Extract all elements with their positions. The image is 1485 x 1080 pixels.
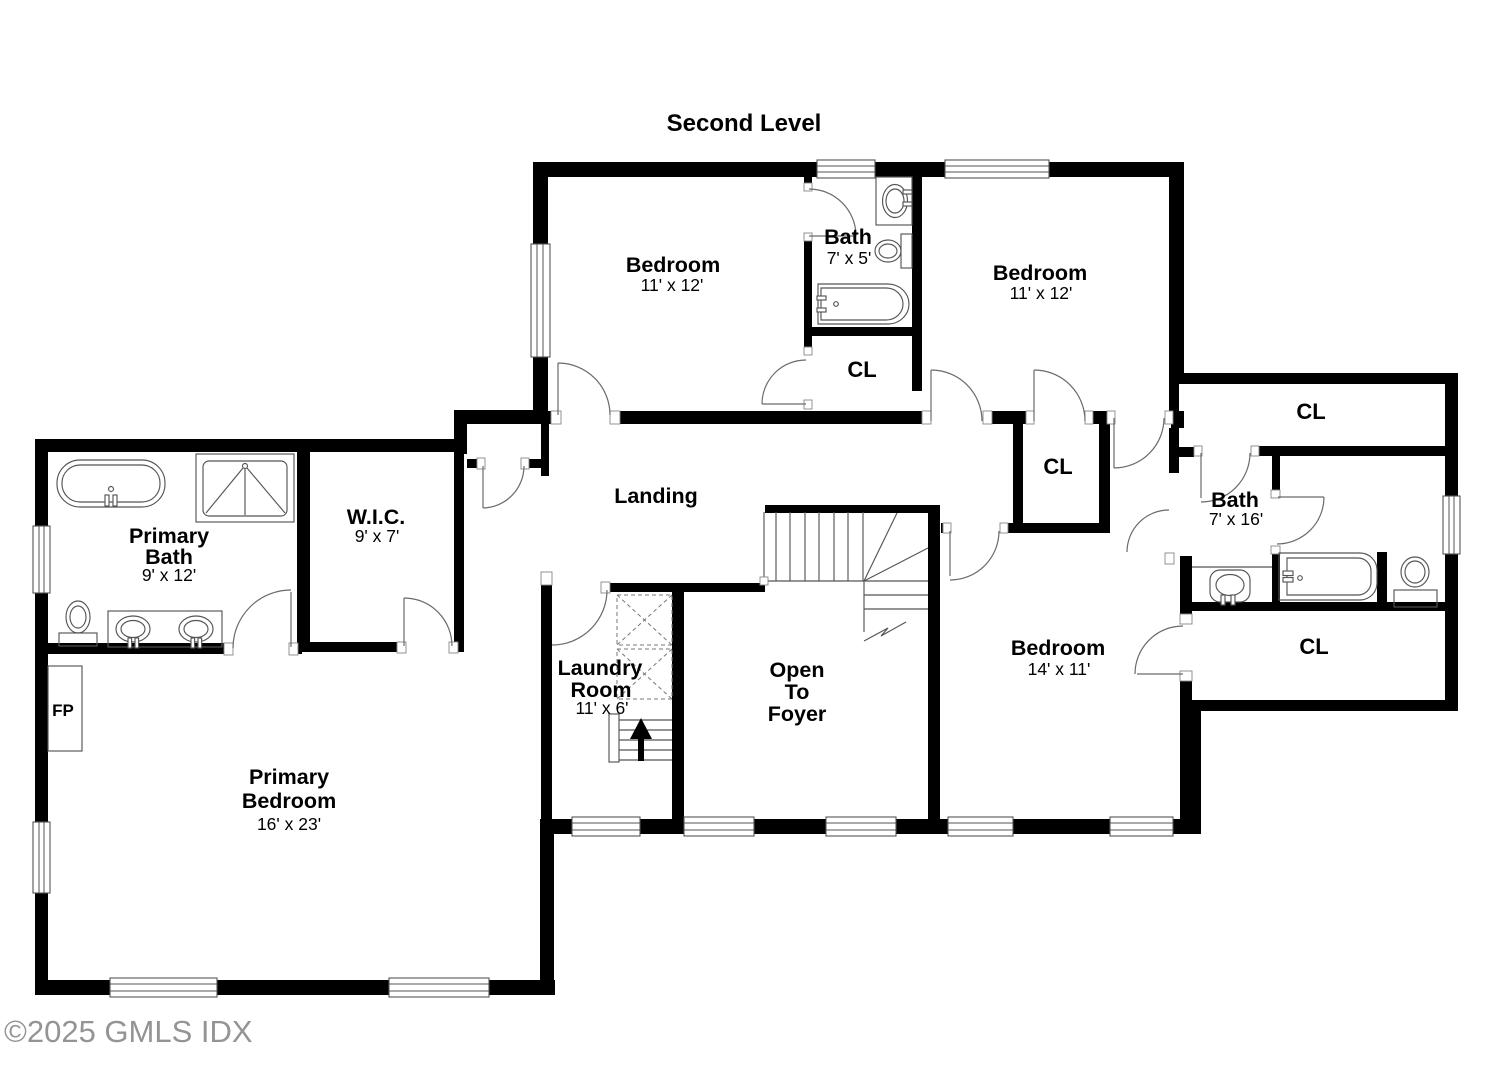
svg-text:Bedroom: Bedroom	[626, 253, 720, 277]
svg-text:16' x 23': 16' x 23'	[257, 814, 321, 834]
svg-text:©2025 GMLS IDX: ©2025 GMLS IDX	[4, 1014, 253, 1049]
svg-text:CL: CL	[847, 357, 876, 382]
svg-text:7' x 5': 7' x 5'	[827, 248, 872, 268]
svg-text:Foyer: Foyer	[768, 702, 827, 726]
svg-text:9' x 12': 9' x 12'	[142, 565, 196, 585]
svg-text:CL: CL	[1299, 634, 1328, 659]
svg-text:Landing: Landing	[614, 484, 698, 508]
svg-text:FP: FP	[52, 701, 74, 720]
svg-text:Bedroom: Bedroom	[993, 261, 1087, 285]
svg-text:Bedroom: Bedroom	[242, 789, 336, 813]
svg-text:Primary: Primary	[249, 765, 329, 789]
svg-text:11' x 12': 11' x 12'	[641, 275, 704, 295]
svg-text:CL: CL	[1043, 454, 1072, 479]
svg-text:CL: CL	[1296, 399, 1325, 424]
svg-text:7' x 16': 7' x 16'	[1209, 509, 1263, 529]
svg-text:To: To	[785, 680, 810, 704]
svg-text:9' x 7': 9' x 7'	[355, 526, 400, 546]
svg-text:11' x 6': 11' x 6'	[575, 698, 628, 718]
svg-text:Laundry: Laundry	[558, 656, 643, 680]
svg-text:11' x 12': 11' x 12'	[1010, 283, 1073, 303]
svg-text:Second Level: Second Level	[667, 110, 822, 137]
svg-text:14' x 11': 14' x 11'	[1028, 659, 1091, 679]
svg-text:Bedroom: Bedroom	[1011, 636, 1105, 660]
svg-text:Open: Open	[770, 658, 825, 682]
svg-text:Bath: Bath	[824, 225, 872, 249]
